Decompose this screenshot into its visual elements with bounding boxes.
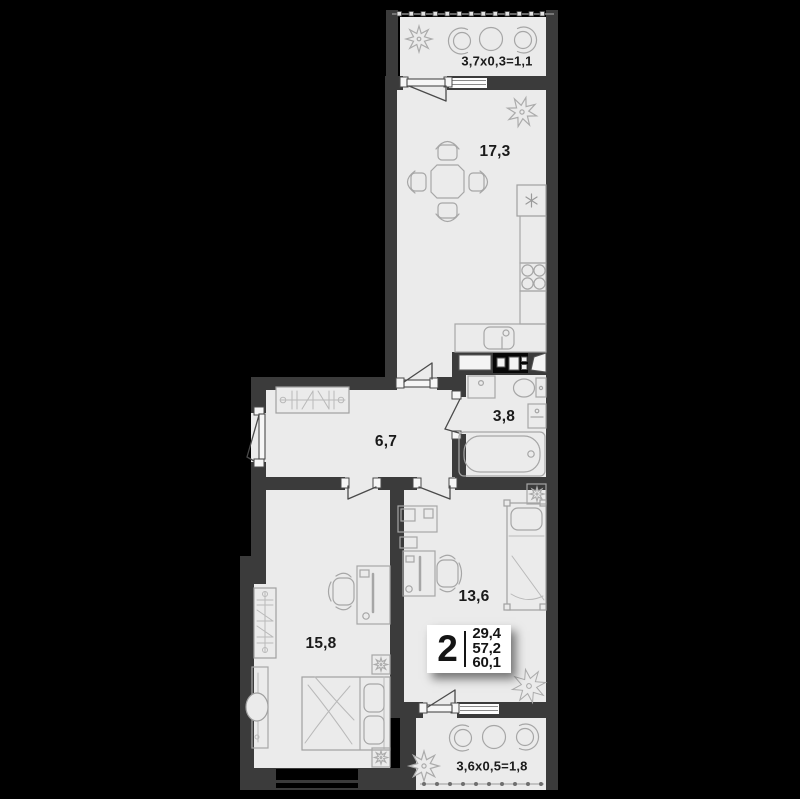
nightstand-icon [372,748,390,767]
kitchen-furniture [408,94,547,352]
room-label-hallway: 6,7 [375,433,397,451]
balcony-top-furniture [406,26,537,54]
round-table-icon [480,28,503,51]
area-summary-badge: 2 29,4 57,2 60,1 [427,625,511,673]
tub-chair-icon [515,27,537,53]
door-balcony-bedroom [419,690,459,713]
chair-icon [408,142,488,222]
bathroom-fixtures [459,376,546,476]
counter-icon [520,291,546,324]
dresser-mirror-icon [246,667,268,748]
balcony-railing [420,782,544,786]
vent-shaft-icon [459,353,546,373]
bathtub-icon [459,432,545,476]
wardrobe-icon [254,588,276,658]
tub-chair-icon [449,725,471,751]
plant-icon [504,94,541,131]
room-label-balcony-top: 3,7x0,3=1,1 [461,54,532,69]
area-value-total: 60,1 [472,656,500,671]
floor-plan: 3,7x0,3=1,1 17,3 3,8 6,7 13,6 15,8 3,6x0… [0,0,800,799]
plan-linework [0,0,800,799]
door-bedroom-right [413,478,457,499]
toilet-icon [514,378,547,397]
kitchen-sink-icon [455,324,546,352]
window [458,703,500,715]
counter-icon [520,216,546,263]
dining-table-icon [431,165,464,198]
balcony-railing [392,12,554,17]
fridge-icon [517,185,546,216]
door-balcony-kitchen [400,77,452,101]
door-bedroom-left [341,478,381,499]
door-bathroom [445,391,461,439]
wardrobe-icon [276,387,349,413]
room-label-balcony-bottom: 3,6x0,5=1,8 [456,759,527,774]
entrance-door [247,407,265,467]
washing-machine-icon [468,376,495,398]
stove-icon [520,263,546,291]
room-label-kitchen: 17,3 [480,143,511,161]
plant-icon [409,751,439,781]
single-bed-icon [504,500,546,610]
door-hall-kitchen [396,363,438,388]
plant-icon [406,26,432,52]
nightstand-icon [372,655,390,674]
plant-icon [509,666,549,706]
room-label-bathroom: 3,8 [493,408,515,426]
office-chair-icon [329,573,355,610]
room-label-bedroom-right: 13,6 [459,588,490,606]
room-label-bedroom-left: 15,8 [306,635,337,653]
room-count: 2 [437,633,458,664]
round-table-icon [483,726,506,749]
bedroom-left-furniture [246,566,390,767]
double-bed-icon [302,677,390,750]
tub-chair-icon [448,28,470,54]
office-chair-icon [437,555,462,592]
desk-icon [357,566,390,624]
window [448,77,488,89]
tub-chair-icon [517,724,539,750]
bath-sink-icon [528,404,546,428]
badge-divider [464,631,467,667]
desk-icon [398,506,437,596]
